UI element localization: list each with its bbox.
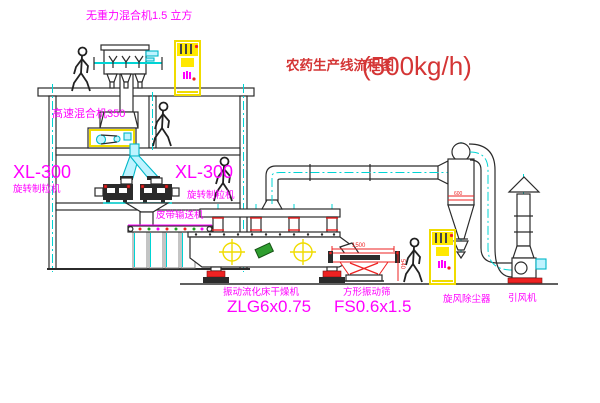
cyclone-label: 旋风除尘器 — [443, 293, 491, 305]
bucket-elevator-bottom — [430, 230, 455, 284]
granulator-left-model: XL-300 — [13, 162, 71, 182]
granulator-right-name: 旋转制粒机 — [187, 189, 235, 201]
fluid-bed-dryer — [188, 200, 360, 283]
worker-ground — [404, 239, 422, 283]
granulator-right-model: XL-300 — [175, 162, 233, 182]
induced-draft-fan — [508, 258, 546, 283]
granulator-right — [140, 178, 179, 203]
dryer-model-label: ZLG6x0.75 — [227, 297, 311, 316]
granulator-left — [95, 178, 133, 203]
screen-model-label: FS0.6x1.5 — [334, 297, 412, 316]
diagram-title-capacity: (500kg/h) — [362, 51, 472, 81]
main-exhaust-duct — [266, 161, 450, 204]
diagram-canvas: 农药生产线流程图 (500kg/h) 无重力混合机1.5 立方 高速混合机350… — [0, 0, 600, 403]
cyclone-dim: 600 — [454, 191, 463, 197]
cad-flow-diagram: 农药生产线流程图 (500kg/h) 无重力混合机1.5 立方 高速混合机350… — [0, 0, 600, 403]
bucket-elevator-top — [175, 41, 200, 95]
gravity-mixer-label: 无重力混合机1.5 立方 — [86, 8, 192, 22]
screen-height-dim: 540 — [399, 259, 405, 270]
screen-length-dim: 1500 — [352, 243, 366, 249]
granulator-left-name: 旋转制粒机 — [13, 183, 61, 195]
belt-conveyor-label: 皮带输送机 — [156, 209, 204, 221]
worker-roof — [72, 48, 90, 92]
fan-label: 引风机 — [508, 292, 537, 304]
cyclone-outlet-duct — [469, 144, 512, 277]
high-speed-mixer-label: 高速混合机350 — [52, 106, 125, 120]
